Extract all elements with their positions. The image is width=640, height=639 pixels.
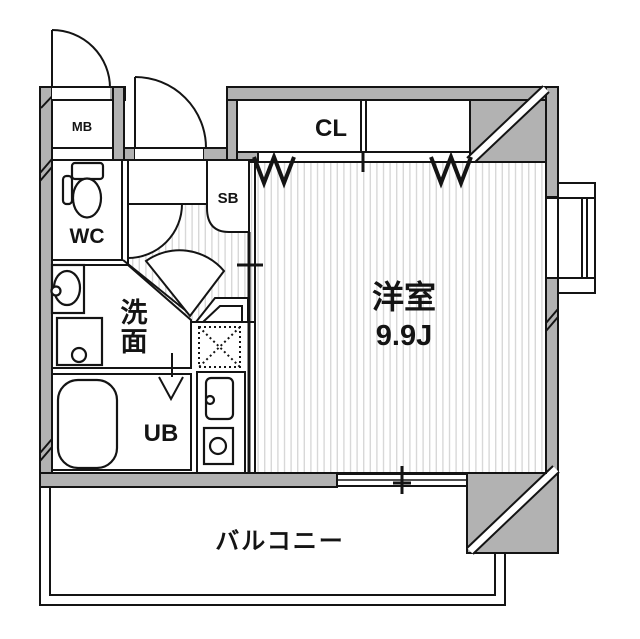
wall-entry-stub (124, 148, 135, 160)
wall-entry-connector (113, 87, 124, 160)
shoe-box-label: SB (218, 190, 239, 207)
refrigerator-space-cross (199, 327, 240, 367)
meter-box-label: MB (72, 119, 92, 134)
wall-right-upper (546, 87, 558, 197)
stove-burner-icon (210, 438, 226, 454)
washroom-label-char1: 洗 (121, 298, 148, 328)
refrigerator-space-icon (199, 327, 240, 367)
toilet-lid-icon (63, 176, 72, 204)
meter-box-door-opening (52, 86, 110, 101)
wall-top (227, 87, 558, 100)
wall-right-lower (546, 278, 558, 474)
washbasin-faucet-icon (52, 287, 61, 296)
floorplan-page: MB WC 洗 面 UB SB CL 洋室 9.9J バルコニー (0, 0, 640, 639)
unit-bath-label: UB (144, 420, 179, 447)
entrance-door-swing-icon (135, 77, 206, 148)
floorplan-canvas: MB WC 洗 面 UB SB CL 洋室 9.9J バルコニー (0, 0, 640, 639)
meter-box-door-swing-icon (52, 30, 110, 88)
closet-label: CL (315, 115, 347, 142)
kitchen-faucet-icon (206, 396, 214, 404)
wall-bottom (40, 473, 337, 487)
bay-window (558, 183, 595, 293)
closet (237, 100, 470, 152)
toilet-bowl-icon (73, 179, 101, 218)
wall-left (40, 87, 52, 487)
main-room-label: 洋室 (372, 279, 436, 315)
balcony-label: バルコニー (215, 528, 345, 555)
bathtub-icon (58, 380, 117, 468)
toilet-label: WC (70, 225, 105, 248)
washing-machine-drain-icon (72, 348, 86, 362)
main-room-floor (255, 162, 546, 473)
entry-floor-area (128, 160, 207, 204)
washroom-label-char2: 面 (121, 327, 148, 357)
main-room-size: 9.9J (376, 320, 432, 352)
toilet-tank-icon (72, 163, 103, 179)
refrigerator-space-cross (199, 327, 240, 367)
entrance-door-opening (135, 147, 203, 161)
